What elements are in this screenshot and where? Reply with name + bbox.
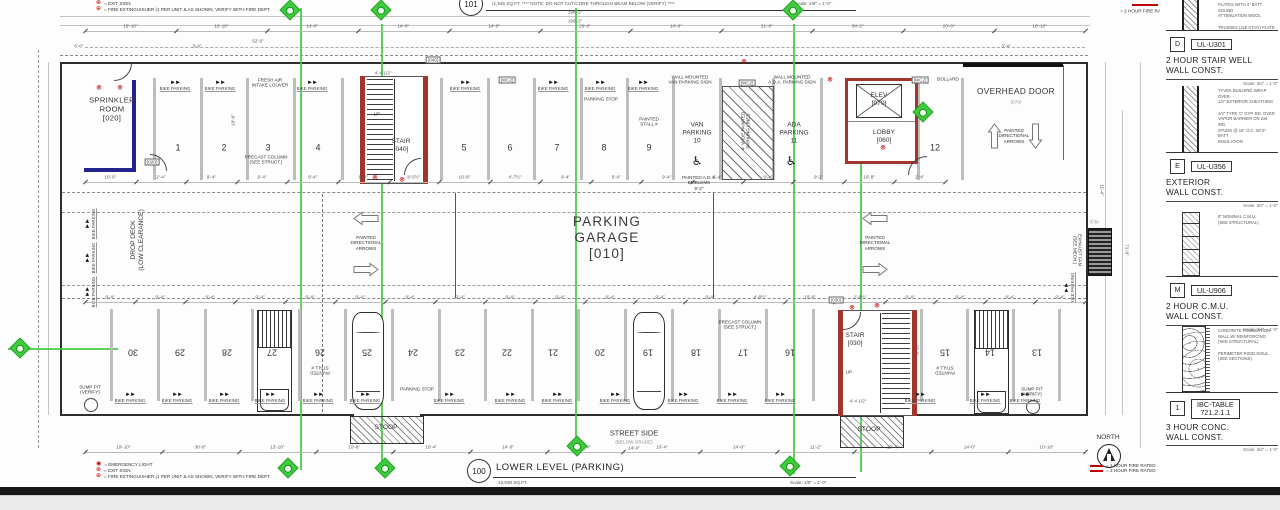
bike-parking: ►►BIKE PARKING: [434, 392, 465, 404]
section-marker-icon: [277, 457, 298, 478]
dimension-label: 9'-4": [705, 295, 714, 300]
door-swing-arc: [114, 63, 132, 81]
bike-parking-label: BIKE PARKING: [91, 243, 97, 274]
column-strip: [820, 78, 823, 180]
plan-label: 19'-6": [230, 114, 235, 126]
wall-detail-ul-u906: 8" NOMINAL C.M.U.(SEE STRUCTURAL)MUL-U90…: [1166, 212, 1278, 332]
bike-parking: ►►BIKE PARKING: [85, 209, 97, 240]
bike-parking-label: BIKE PARKING: [905, 398, 936, 404]
lower-title-scale: Scale: 1/8" = 1'-0": [790, 480, 826, 485]
plan-label: EXHAUST FAN(SEE MECH.): [1072, 234, 1083, 266]
dimension-label: 10'-10": [214, 24, 228, 29]
dimension-label: 9'-4": [405, 295, 414, 300]
bike-parking-label: BIKE PARKING: [970, 398, 1001, 404]
column-strip: [391, 309, 394, 401]
detail-code: UL-U356: [1191, 161, 1232, 173]
stall-number: 3: [265, 143, 270, 154]
plan-label: 6'-0": [74, 43, 83, 48]
section-marker-icon: [9, 337, 30, 358]
stall-number: 23: [455, 347, 465, 358]
bike-parking-label: BIKE PARKING: [495, 398, 526, 404]
detail-notes: 8" NOMINAL C.M.U.(SEE STRUCTURAL): [1218, 214, 1276, 225]
bike-parking-label: BIKE PARKING: [542, 398, 573, 404]
exit-sign-icon: ⊗: [849, 305, 855, 312]
dimension-line: [85, 182, 945, 183]
detail-notes: CONCRETE FOUNDATIONWALL W/ REINFORCING(S…: [1218, 328, 1276, 362]
truck-bed: [975, 311, 1008, 349]
column-strip: [765, 309, 768, 401]
plan-label: PARKING STOP: [584, 96, 618, 101]
bike-parking: ►►BIKE PARKING: [115, 392, 146, 404]
detail-title: 2 HOUR C.M.U.WALL CONST.: [1166, 302, 1278, 326]
section-marker-icon: [779, 455, 800, 476]
dimension-label: 14'-0": [306, 24, 318, 29]
bike-parking: ►►BIKE PARKING: [450, 80, 481, 92]
dimension-label: 9'-4": [555, 295, 564, 300]
legend-label: = FIRE EXTINGUISHER (1 PER UNIT & AS SHO…: [104, 474, 271, 479]
exit-sign-icon: ⊗: [117, 85, 123, 92]
column-strip: [672, 78, 675, 180]
bike-parking-label: BIKE PARKING: [668, 398, 699, 404]
plan-label: ELEV[070]: [871, 92, 888, 108]
bike-parking: ►►BIKE PARKING: [209, 392, 240, 404]
bike-parking: ►►BIKE PARKING: [350, 392, 381, 404]
bike-parking: ►►BIKE PARKING: [765, 392, 796, 404]
wall-type-tag: (030): [829, 297, 844, 304]
plan-label: STOOP: [858, 426, 881, 434]
plan-line: [60, 62, 1088, 64]
column-strip: [966, 309, 969, 401]
dimension-tick: [1083, 450, 1088, 455]
ada-wheelchair-icon: ♿: [692, 155, 703, 167]
dimension-label: 9'-2": [814, 175, 823, 180]
bike-parking-label: BIKE PARKING: [297, 86, 328, 92]
plan-label: WALL MOUNTEDA.D.A. PARKING SIGN: [768, 75, 815, 86]
fire-legend-label: = 2 HOUR FIRE RATED: [1106, 468, 1156, 473]
plan-label: PAINTEDDIRECTIONALARROWS: [860, 235, 891, 251]
plan-label: PAINTEDSTALL #: [310, 365, 330, 376]
dimension-label: 19'-10": [123, 24, 137, 29]
exit-sign-icon: ⊗: [827, 77, 833, 84]
dimension-label: 9'-4": [255, 295, 264, 300]
wall-section-hatch: [1182, 212, 1200, 276]
plan-label: 52'-0": [252, 38, 264, 43]
plan-label: 4" WIDE PAINTEDPARKING LINES: [741, 112, 752, 150]
dimension-label: 34'-2": [852, 24, 864, 29]
plan-label: 198'-2": [568, 9, 582, 14]
wall-section-hatch: [1182, 0, 1199, 30]
exit-sign-icon: ⊗: [741, 59, 747, 66]
stall-number: 7: [554, 143, 559, 154]
detail-label-row: 1IBC-TABLE721.2.1.1: [1170, 399, 1278, 419]
detail-notes: PLATES WITH 4" BATT SOUNDATTENUATION WOO…: [1218, 2, 1276, 30]
dimension-label: 9'-4": [455, 295, 464, 300]
plan-label: STAIR[040]: [392, 138, 411, 154]
dimension-label: 20'-0": [579, 24, 591, 29]
stall-number: 1: [175, 143, 180, 154]
bike-parking: ►►BIKE PARKING: [717, 392, 748, 404]
fire-rated-line-icon: [1090, 470, 1103, 472]
exhaust-fan-box: [1088, 228, 1112, 276]
plan-line: [38, 50, 40, 448]
dimension-label: 10'-4": [887, 445, 899, 450]
dimension-label: 9'-4": [305, 295, 314, 300]
detail-label-row: MUL-U906: [1170, 283, 1278, 298]
directional-arrow-up-icon: [1028, 123, 1048, 149]
stall-number: 26: [315, 347, 325, 358]
section-marker-icon: [279, 0, 300, 21]
plan-label: LOBBY[060]: [873, 129, 895, 145]
bike-parking-label: BIKE PARKING: [115, 398, 146, 404]
column-strip: [624, 309, 627, 401]
dimension-label: 10'-8": [804, 295, 816, 300]
stall-number: 29: [175, 347, 185, 358]
plan-label: WALL MOUNTEDVAN PARKING SIGN: [668, 75, 711, 86]
stall-number: 12: [930, 143, 940, 154]
plan-label: SPRINKLERROOM[020]: [89, 97, 135, 124]
dimension-label: 9'-4": [359, 175, 368, 180]
plan-label: ⒺⓂ: [1089, 219, 1098, 224]
fire-riser-wall: [132, 80, 136, 172]
wall-section-graphic: PLATES WITH 4" BATT SOUNDATTENUATION WOO…: [1166, 0, 1278, 31]
stall-number: 4: [315, 143, 320, 154]
plan-line: [1140, 62, 1141, 448]
stall-number: 17: [738, 347, 748, 358]
bike-parking: ►►BIKE PARKING: [542, 392, 573, 404]
column-strip: [484, 309, 487, 401]
dimension-label: 2'-4": [915, 175, 924, 180]
plan-line: [1122, 110, 1123, 415]
dimension-label: 9'-4": [505, 295, 514, 300]
dimension-label: 14'-0": [733, 445, 745, 450]
wall-type-tag: [WC2]: [912, 77, 929, 84]
plan-line: [322, 194, 324, 412]
lower-title-number: 100: [472, 467, 485, 476]
dimension-label: 9'-4": [655, 295, 664, 300]
wall-detail-ul-u356: TYVEK BUILDING WRAP OVER1/2" EXTERIOR SH…: [1166, 86, 1278, 208]
plan-label: VANPARKING10: [682, 121, 711, 144]
plan-label: (070): [1011, 99, 1022, 104]
stall-number: 16: [785, 347, 795, 358]
bike-parking-label: BIKE PARKING: [91, 209, 97, 240]
plan-label: BOLLARD: [937, 76, 958, 81]
column-strip: [298, 309, 301, 401]
bike-parking-label: BIKE PARKING: [1010, 398, 1041, 404]
sump-pit-circle: [84, 398, 98, 412]
column-strip: [110, 309, 113, 401]
bike-parking: ►►BIKE PARKING: [495, 392, 526, 404]
bike-parking: ►►BIKE PARKING: [1064, 273, 1076, 304]
dimension-label: 2'-4": [156, 175, 165, 180]
drawing-sheet: ⊗= EXIT SIGN⊕= FIRE EXTINGUISHER (1 PER …: [0, 0, 1280, 509]
plan-label: SUMP PIT(VERIFY): [79, 385, 101, 396]
column-strip: [1058, 309, 1061, 401]
plan-line: [455, 193, 456, 298]
lower-title-bubble: 100: [467, 459, 491, 483]
column-strip: [671, 309, 674, 401]
exit-sign-icon: ⊗: [880, 145, 886, 152]
bike-parking: ►►BIKE PARKING: [538, 80, 569, 92]
stall-number: 30: [128, 347, 138, 358]
column-strip: [440, 78, 443, 180]
stall-number: 28: [222, 347, 232, 358]
detail-letter: 1: [1170, 401, 1185, 416]
stall-number: 8: [601, 143, 606, 154]
section-marker-icon: [782, 0, 803, 21]
plan-label: PAINTEDSTALL #: [639, 117, 659, 128]
column-strip: [577, 309, 580, 401]
dimension-label: 10'-4": [425, 445, 437, 450]
stair-wall: [360, 76, 365, 184]
stair-divider: [880, 313, 881, 413]
stall-number: 18: [691, 347, 701, 358]
dimension-label: 11'-2": [810, 445, 821, 450]
dimension-label: 9'-4": [905, 295, 914, 300]
bike-parking-label: BIKE PARKING: [205, 86, 236, 92]
plan-line: [62, 285, 1086, 287]
lower-title-area: 13,930 SQ.FT.: [498, 480, 528, 485]
dimension-tick: [943, 180, 948, 185]
dimension-line: [85, 452, 1085, 453]
dimension-label: 9'-4": [355, 295, 364, 300]
legend-label: = EMERGENCY LIGHT: [104, 462, 152, 467]
stall-number: 27: [267, 347, 277, 358]
bike-parking: ►►BIKE PARKING: [160, 80, 191, 92]
dimension-label: 4'-7½": [509, 175, 522, 180]
dimension-label: 9'-4": [155, 295, 164, 300]
bottom-gray-strip: [0, 495, 1280, 510]
plan-label: OVERHEAD DOOR: [977, 87, 1055, 97]
dimension-tick: [1083, 29, 1088, 34]
plan-label: FRESH AIRINTAKE LOUVER: [252, 78, 288, 89]
plan-line: [420, 414, 842, 416]
detail-letter: M: [1170, 283, 1185, 298]
bike-parking-label: BIKE PARKING: [303, 398, 334, 404]
dimension-label: 21'-8": [761, 24, 773, 29]
plan-label: (BELOW GRADE): [615, 439, 652, 444]
detail-letter: D: [1170, 37, 1185, 52]
stall-number: 13: [1032, 347, 1042, 358]
wall-section-graphic: CONCRETE FOUNDATIONWALL W/ REINFORCING(S…: [1166, 326, 1278, 393]
dimension-label: 19'-10": [116, 445, 130, 450]
stall-number: 9: [646, 143, 651, 154]
bike-parking: ►►BIKE PARKING: [297, 80, 328, 92]
directional-arrow-left-icon: [862, 211, 888, 231]
lobby-divider: [848, 121, 915, 122]
bike-parking-label: BIKE PARKING: [628, 86, 659, 92]
plan-label: UP: [846, 369, 852, 374]
plan-label: PARKINGGARAGE[010]: [573, 214, 641, 262]
detail-scale: Scale: 3/4" = 1'-0": [1166, 447, 1278, 452]
wall-detail-ibc-table: CONCRETE FOUNDATIONWALL W/ REINFORCING(S…: [1166, 326, 1278, 452]
bike-parking: ►►BIKE PARKING: [628, 80, 659, 92]
detail-label-row: DUL-U301: [1170, 37, 1278, 52]
plan-label: STAIR[030]: [846, 332, 865, 348]
fire-rated-line-icon: [1090, 465, 1103, 467]
column-strip: [204, 309, 207, 401]
fire-legend-bottom-right: = 1 HOUR FIRE RATED= 2 HOUR FIRE RATED: [1090, 463, 1156, 473]
plan-label: PARKING STOP: [400, 386, 434, 391]
detail-label-row: EUL-U356: [1170, 159, 1278, 174]
column-strip: [580, 78, 583, 180]
dimension-label: 9'-4": [105, 295, 114, 300]
plan-line: [900, 414, 1088, 416]
detail-code: UL-U301: [1191, 39, 1232, 51]
detail-code: IBC-TABLE721.2.1.1: [1191, 399, 1240, 419]
bike-parking-label: BIKE PARKING: [209, 398, 240, 404]
column-strip: [251, 309, 254, 401]
plan-label: 11'-4": [1099, 184, 1104, 195]
wall-section-graphic: TYVEK BUILDING WRAP OVER1/2" EXTERIOR SH…: [1166, 86, 1278, 153]
wall-detail-ul-u301: PLATES WITH 4" BATT SOUNDATTENUATION WOO…: [1166, 0, 1278, 86]
column-strip: [531, 309, 534, 401]
wall-type-tag: [WC2]: [499, 77, 516, 84]
plan-label: 21'-0": [914, 344, 919, 356]
stall-number: 2: [221, 143, 226, 154]
directional-arrow-right-icon: [353, 257, 379, 277]
detail-letter: E: [1170, 159, 1185, 174]
plan-layer: ►►BIKE PARKING►►BIKE PARKING►►BIKE PARKI…: [0, 0, 1165, 509]
bike-parking: ►►BIKE PARKING: [668, 392, 699, 404]
column-strip: [1012, 309, 1015, 401]
column-strip: [293, 78, 296, 180]
car-plan-figure: [633, 312, 665, 410]
dimension-label: 9'-4": [207, 175, 216, 180]
legend-bottom: ◉= EMERGENCY LIGHT⊗= EXIT SIGN⊕= FIRE EX…: [96, 461, 271, 479]
column-strip: [341, 78, 344, 180]
exit-sign-icon: ⊗: [372, 175, 378, 182]
details-panel: PLATES WITH 4" BATT SOUNDATTENUATION WOO…: [1160, 0, 1280, 487]
dimension-label: 14'-0": [488, 24, 500, 29]
dimension-label: 9'-4": [605, 295, 614, 300]
wall-type-tag: (020): [145, 159, 160, 166]
plan-line: [1063, 65, 1064, 160]
fire-legend-row: = 2 HOUR FIRE RATED: [1090, 468, 1156, 473]
dimension-label: 2'-8½": [854, 295, 867, 300]
bike-parking: ►►BIKE PARKING: [600, 392, 631, 404]
bottom-black-bar: [0, 487, 1280, 495]
bike-parking: ►►BIKE PARKING: [255, 392, 286, 404]
dimension-label: 9'-4": [662, 175, 671, 180]
plan-label: 196'-2": [568, 18, 582, 23]
bike-parking-label: BIKE PARKING: [160, 86, 191, 92]
dimension-label: 14'-0": [670, 24, 682, 29]
dimension-label: 9'-4": [1005, 295, 1014, 300]
dimension-label: 9'-4": [1055, 295, 1064, 300]
section-marker-icon: [566, 435, 587, 456]
lower-title-rule: [493, 477, 856, 478]
bike-parking: ►►BIKE PARKING: [585, 80, 616, 92]
dimension-label: 10'-10": [1032, 24, 1046, 29]
dimension-label: 14'-0": [964, 445, 976, 450]
bike-parking-label: BIKE PARKING: [434, 398, 465, 404]
section-marker-icon: [370, 0, 391, 21]
column-strip: [157, 309, 160, 401]
bike-parking-label: BIKE PARKING: [1070, 273, 1076, 304]
dimension-label: 13'-10": [270, 445, 284, 450]
lower-title-label: LOWER LEVEL (PARKING): [496, 462, 624, 473]
legend-label: = EXIT SIGN: [104, 468, 131, 473]
exit-sign-icon: ⊗: [874, 303, 880, 310]
plan-label: PAINTEDSTALL #: [935, 365, 955, 376]
wall-section-hatch: [1182, 326, 1206, 392]
plan-line: [85, 47, 1085, 49]
dimension-label: 10'-4": [656, 445, 668, 450]
dimension-label: 9'-4": [308, 175, 317, 180]
dimension-line: [85, 31, 1085, 32]
fire-riser-wall: [84, 168, 136, 172]
dimension-label: 10'-10": [1039, 445, 1053, 450]
stall-number: 20: [595, 347, 605, 358]
detail-notes: TYVEK BUILDING WRAP OVER1/2" EXTERIOR SH…: [1218, 88, 1276, 145]
detail-title: EXTERIORWALL CONST.: [1166, 178, 1278, 202]
directional-arrow-left-icon: [353, 211, 379, 231]
bike-parking-label: BIKE PARKING: [585, 86, 616, 92]
stall-number: 15: [940, 347, 950, 358]
bike-parking: ►►BIKE PARKING: [905, 392, 936, 404]
plan-label: 4'-4 1/2": [375, 70, 392, 75]
bike-parking-label: BIKE PARKING: [765, 398, 796, 404]
fire-extinguisher-icon: ⊕: [96, 473, 101, 479]
dimension-label: 9'-4": [612, 175, 621, 180]
column-strip: [812, 309, 815, 401]
plan-label: 71'-0": [1124, 244, 1129, 256]
plan-line: [713, 193, 714, 298]
dimension-label: 10'-8": [348, 445, 360, 450]
dimension-label: 14'-0": [397, 24, 409, 29]
directional-arrow-down-icon: [982, 123, 1002, 149]
column-strip: [961, 78, 964, 180]
plan-label: ADAPARKING11: [779, 121, 808, 144]
plan-line: [48, 62, 49, 415]
detail-title: 3 HOUR CONC.WALL CONST.: [1166, 423, 1278, 447]
bike-parking: ►►BIKE PARKING: [970, 392, 1001, 404]
column-strip: [438, 309, 441, 401]
plan-line: [963, 63, 1063, 67]
bike-parking: ►►BIKE PARKING: [303, 392, 334, 404]
insulation-strip: [1206, 326, 1210, 392]
plan-label: PRECAST COLUMN(SEE STRUCT.): [245, 155, 288, 166]
dimension-label: 4'-8½": [754, 295, 767, 300]
detail-code: UL-U906: [1191, 285, 1232, 297]
plan-line: [60, 55, 1088, 57]
exit-sign-icon: ⊗: [96, 85, 102, 92]
stall-number: 19: [643, 347, 653, 358]
truck-bed: [258, 311, 291, 348]
bike-parking-label: BIKE PARKING: [717, 398, 748, 404]
bike-parking-label: BIKE PARKING: [538, 86, 569, 92]
bike-parking: ►►BIKE PARKING: [85, 243, 97, 274]
stall-number: 21: [548, 347, 558, 358]
dimension-label: 10'-8": [863, 175, 875, 180]
dimension-label: 8'-5½": [407, 175, 420, 180]
section-marker-icon: [374, 457, 395, 478]
detail-scale: Scale: 3/4" = 1'-0": [1166, 203, 1278, 208]
bike-parking-label: BIKE PARKING: [600, 398, 631, 404]
dimension-label: 9'-4": [763, 175, 772, 180]
plan-line: [62, 298, 1086, 300]
column-strip: [200, 78, 203, 180]
column-strip: [533, 78, 536, 180]
dimension-label: 30'-8": [195, 445, 207, 450]
stair-wall: [423, 76, 428, 184]
dimension-label: 10'-0": [104, 175, 116, 180]
green-reference-line: [793, 24, 795, 474]
wall-section-graphic: 8" NOMINAL C.M.U.(SEE STRUCTURAL): [1166, 212, 1278, 277]
bike-parking-label: BIKE PARKING: [450, 86, 481, 92]
bike-parking: ►►BIKE PARKING: [162, 392, 193, 404]
stall-number: 22: [502, 347, 512, 358]
